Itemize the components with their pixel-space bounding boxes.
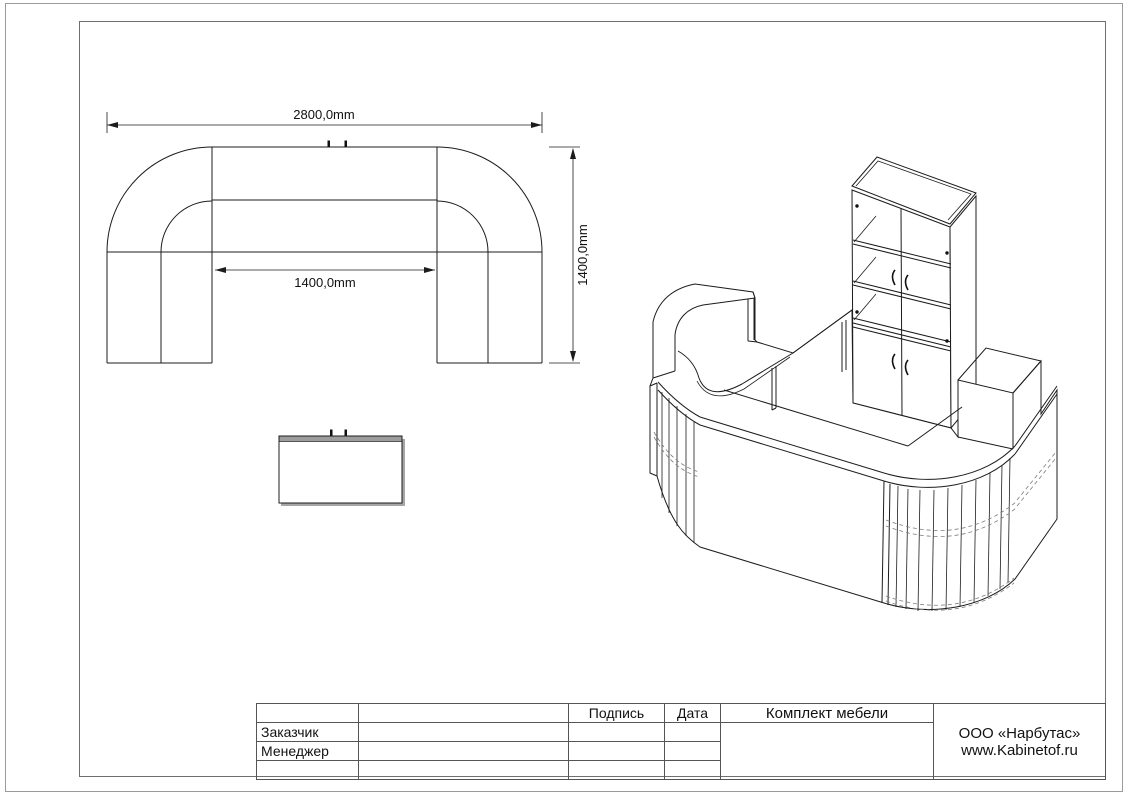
hinge-dot [945,339,948,342]
customer-value [359,723,569,742]
dim-label-2800: 2800,0mm [293,107,354,122]
panel-face [279,436,402,503]
date-header: Дата [665,704,721,723]
connector-mark [328,141,331,148]
hinge-dot [855,204,858,207]
hinge-dot [855,310,858,313]
dimension-depth: 1400,0mm [549,147,590,363]
isometric-view [650,157,1057,611]
dimension-inner-width: 1400,0mm [215,267,435,290]
customer-date [665,723,721,742]
front-view [279,430,405,507]
manager-label: Менеджер [257,742,359,761]
manager-signature [569,742,665,761]
title-block: Подпись Дата Комплект мебели ООО «Нарбут… [256,703,1106,780]
shadow-edge [403,439,406,505]
company-name: ООО «Нарбутас» [938,725,1101,742]
shadow-edge [281,504,405,507]
dim-label-1400-inner: 1400,0mm [294,275,355,290]
company-website: www.Kabinetof.ru [938,742,1101,759]
project-title: Комплект мебели [721,704,934,723]
hinge-dot [945,251,948,254]
signature-header: Подпись [569,704,665,723]
project-description-cell [721,723,934,780]
title-block-cell-empty [569,761,665,780]
title-block-cell-empty [359,704,569,723]
cabinet [852,157,976,428]
customer-signature [569,723,665,742]
customer-label: Заказчик [257,723,359,742]
connector-mark [330,430,333,437]
title-block-cell-empty [257,761,359,780]
panel-top-strip [280,437,402,442]
company-cell: ООО «Нарбутас» www.Kabinetof.ru [934,704,1106,780]
drawing-sheet: 2800,0mm 1400,0mm [0,0,1129,800]
manager-date [665,742,721,761]
connector-mark [345,141,348,148]
title-block-cell-empty [665,761,721,780]
dim-label-1400-depth: 1400,0mm [575,224,590,285]
title-block-cell-empty [257,704,359,723]
plan-view: 2800,0mm 1400,0mm [107,107,590,363]
dimension-total-width: 2800,0mm [107,107,542,133]
manager-value [359,742,569,761]
title-block-cell-empty [359,761,569,780]
technical-drawing: 2800,0mm 1400,0mm [0,0,1129,800]
connector-mark [345,430,348,437]
